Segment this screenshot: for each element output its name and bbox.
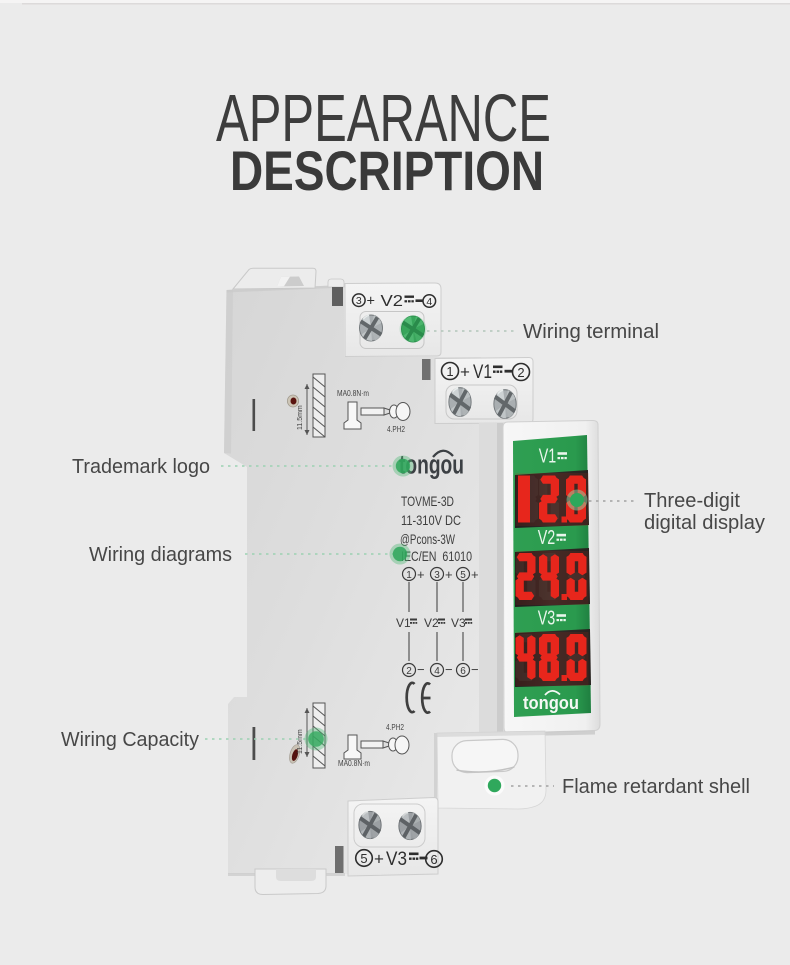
svg-text:digital display: digital display (644, 512, 765, 534)
svg-text:−: − (445, 662, 453, 677)
svg-text:11-310V DC: 11-310V DC (401, 512, 461, 528)
svg-text:4.PH2: 4.PH2 (386, 723, 404, 732)
svg-text:@Pcons-3W: @Pcons-3W (400, 531, 456, 547)
svg-text:+: + (417, 567, 425, 582)
svg-text:tongou: tongou (523, 693, 579, 713)
svg-text:6: 6 (460, 666, 466, 677)
svg-text:MA0.8N·m: MA0.8N·m (338, 759, 370, 768)
svg-text:Wiring Capacity: Wiring Capacity (61, 729, 199, 751)
svg-text:+: + (445, 567, 453, 582)
svg-text:+: + (367, 294, 375, 310)
svg-text:V2: V2 (538, 527, 556, 549)
svg-text:Trademark logo: Trademark logo (72, 456, 210, 478)
svg-text:MA0.8N·m: MA0.8N·m (337, 389, 369, 398)
svg-text:11.5mm: 11.5mm (297, 405, 304, 430)
svg-text:IEC/EN 61010: IEC/EN 61010 (401, 548, 472, 564)
svg-text:1: 1 (446, 364, 453, 379)
svg-text:2: 2 (406, 666, 412, 677)
svg-text:DESCRIPTION: DESCRIPTION (230, 139, 544, 202)
svg-text:V3: V3 (538, 608, 556, 630)
svg-text:6: 6 (430, 852, 437, 867)
svg-text:1: 1 (406, 570, 412, 581)
svg-text:+: + (471, 567, 479, 582)
svg-text:Wiring terminal: Wiring terminal (523, 321, 659, 343)
svg-text:+: + (374, 850, 384, 869)
svg-text:Wiring diagrams: Wiring diagrams (89, 544, 232, 566)
svg-text:V1: V1 (396, 616, 411, 630)
svg-text:Flame retardant shell: Flame retardant shell (562, 776, 750, 798)
svg-text:4: 4 (434, 666, 440, 677)
svg-text:5: 5 (460, 570, 466, 581)
svg-text:V3: V3 (386, 849, 407, 870)
svg-text:3: 3 (434, 570, 440, 581)
svg-text:−: − (471, 662, 479, 677)
svg-text:V1: V1 (539, 446, 557, 468)
svg-text:2: 2 (517, 365, 524, 380)
svg-text:4: 4 (426, 296, 432, 308)
svg-text:+: + (460, 363, 470, 382)
svg-text:TOVME-3D: TOVME-3D (401, 493, 454, 509)
svg-text:4.PH2: 4.PH2 (387, 425, 405, 434)
svg-text:V3: V3 (451, 616, 466, 630)
svg-text:5: 5 (360, 851, 367, 866)
svg-text:11.5mm: 11.5mm (297, 729, 304, 754)
svg-text:Three-digit: Three-digit (644, 490, 740, 512)
svg-text:V2: V2 (424, 616, 439, 630)
svg-text:3: 3 (356, 295, 362, 307)
svg-text:V2: V2 (381, 293, 404, 310)
svg-text:V1: V1 (473, 362, 492, 383)
svg-text:−: − (417, 662, 425, 677)
